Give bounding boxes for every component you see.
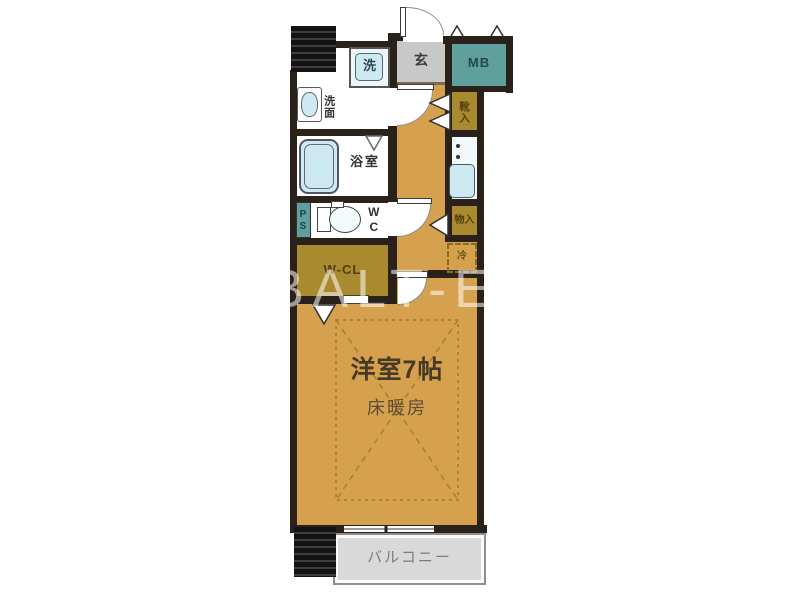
label-toilet: WC — [366, 204, 380, 236]
label-main-room: 洋室7帖 — [317, 356, 477, 385]
label-meter-box: MB — [452, 56, 506, 71]
label-balcony: バルコニー — [333, 549, 486, 566]
entrance-door-arc — [406, 7, 444, 35]
label-storage: 物入 — [450, 215, 479, 227]
balcony-window-line — [344, 528, 434, 530]
label-pipe-space: PS — [297, 205, 309, 236]
vent-mark-icon — [451, 26, 463, 36]
watermark: BALT-EST — [268, 258, 583, 320]
label-genkan: 玄 — [397, 52, 445, 68]
wall-segment — [506, 36, 513, 93]
wall-segment — [452, 130, 477, 137]
label-washer: 洗 — [349, 59, 390, 74]
pillar-top-left — [291, 26, 336, 72]
kitchen-sink-icon — [449, 164, 475, 198]
wall-segment — [290, 238, 388, 245]
wall-segment — [443, 36, 513, 44]
entrance-door-leaf — [400, 7, 406, 37]
toilet-button — [331, 201, 344, 208]
toilet-door-opening — [388, 202, 397, 236]
pillar-bottom-left — [294, 527, 336, 577]
label-vanity: 洗面 — [322, 87, 335, 127]
label-floor-heating: 床暖房 — [317, 398, 477, 419]
toilet-door-leaf — [397, 198, 432, 204]
toilet-bowl — [329, 206, 361, 233]
washroom-door-opening — [388, 88, 397, 126]
wall-segment — [445, 41, 452, 92]
stove-burner-dot — [456, 155, 460, 159]
bathtub-inner-line — [304, 144, 334, 189]
label-bathroom: 浴室 — [342, 155, 388, 170]
vent-mark-icon — [491, 26, 503, 36]
stove-burner-dot — [456, 144, 460, 148]
washroom-door-leaf — [397, 84, 434, 90]
floorplan-canvas: 玄 MB 洗 洗面 浴室 WC PS W-CL 靴入 物入 冷 洋室7帖 床暖房… — [0, 0, 800, 600]
wall-segment — [452, 199, 477, 206]
vanity-sink-bowl — [301, 92, 318, 117]
label-shoe-storage: 靴入 — [458, 95, 470, 129]
wall-segment — [297, 129, 388, 136]
